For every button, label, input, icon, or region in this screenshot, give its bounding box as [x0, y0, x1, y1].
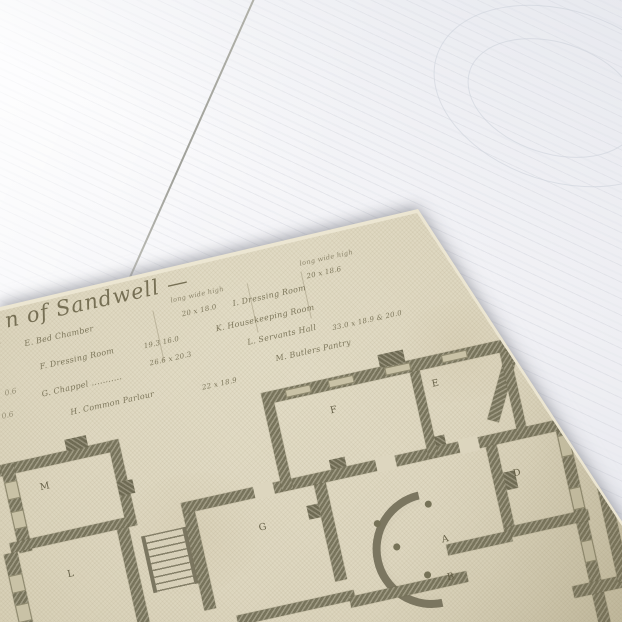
table-row-dims: 33.0 x 18.9 & 20.0: [332, 309, 403, 332]
cut-text-fragment: 0.6: [4, 386, 18, 397]
window-marking: [8, 573, 26, 594]
table-row-dims: 22 x 18.9: [201, 376, 237, 392]
table-rule-line: [152, 311, 164, 362]
table-row-label: F. Dressing Room: [39, 346, 115, 371]
wall-segment: [314, 481, 347, 581]
column-dot: [424, 500, 432, 508]
wall-segment: [0, 439, 120, 478]
wall-segment: [597, 482, 622, 582]
door-opening: [458, 435, 481, 454]
window-marking: [11, 509, 28, 529]
chimney-breast: [117, 479, 136, 496]
table-row-dims: 20 x 18.0: [181, 303, 217, 319]
wall-segment: [486, 444, 517, 536]
engraving-paper: n of Sandwell — t. 0.6 0.6 E. Bed Chambe…: [0, 0, 622, 622]
window-marking: [4, 480, 21, 500]
wall-segment: [446, 530, 513, 555]
room-letter: D: [512, 467, 522, 479]
window-marking: [15, 602, 33, 622]
table-row-label: G. Chappel ...........: [41, 372, 123, 399]
window-marking: [569, 486, 585, 510]
cut-text-fragment: 0.6: [1, 409, 15, 420]
wall-segment: [263, 403, 293, 491]
wall-segment: [236, 590, 355, 622]
photo-stage: n of Sandwell — t. 0.6 0.6 E. Bed Chambe…: [0, 0, 622, 622]
door-opening: [375, 454, 398, 473]
door-opening: [253, 481, 276, 500]
table-row-label: H. Common Parlour: [69, 389, 155, 416]
room-letter: F: [329, 404, 338, 416]
cut-text-fragment: t.: [0, 336, 2, 346]
room-letter: L: [66, 568, 75, 580]
paper-sheet-wrap: n of Sandwell — t. 0.6 0.6 E. Bed Chambe…: [0, 0, 622, 622]
engraving-content: n of Sandwell — t. 0.6 0.6 E. Bed Chambe…: [0, 146, 622, 622]
table-col-header: long wide high: [299, 248, 354, 268]
window-marking: [580, 539, 596, 563]
table-row-label: I. Dressing Room: [232, 283, 307, 308]
table-row-label: M. Butlers Pantry: [275, 338, 352, 363]
room-letter: A: [441, 533, 450, 545]
table-row-dims: 26.6 x 20.3: [149, 350, 193, 367]
room-letter: M: [39, 480, 51, 493]
table-row-label: E. Bed Chamber: [24, 324, 95, 348]
table-row-dims: 20 x 18.6: [306, 265, 342, 281]
